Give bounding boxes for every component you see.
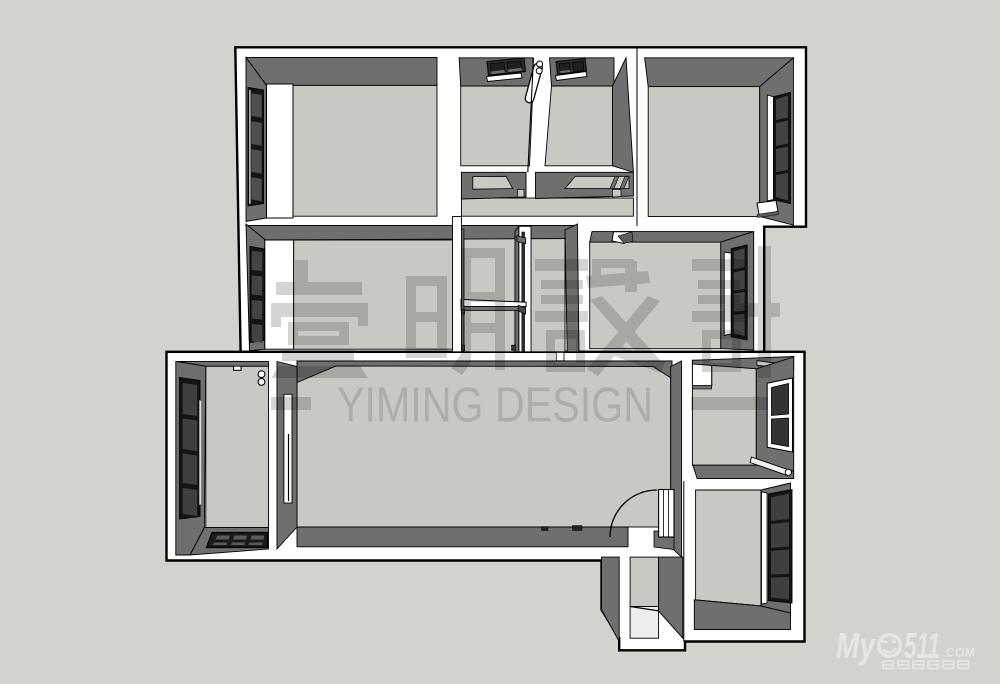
svg-text:My: My [836,625,877,666]
svg-text:.COM: .COM [942,646,975,660]
svg-text:511: 511 [904,625,940,666]
svg-text:YIMING DESIGN: YIMING DESIGN [337,379,653,433]
